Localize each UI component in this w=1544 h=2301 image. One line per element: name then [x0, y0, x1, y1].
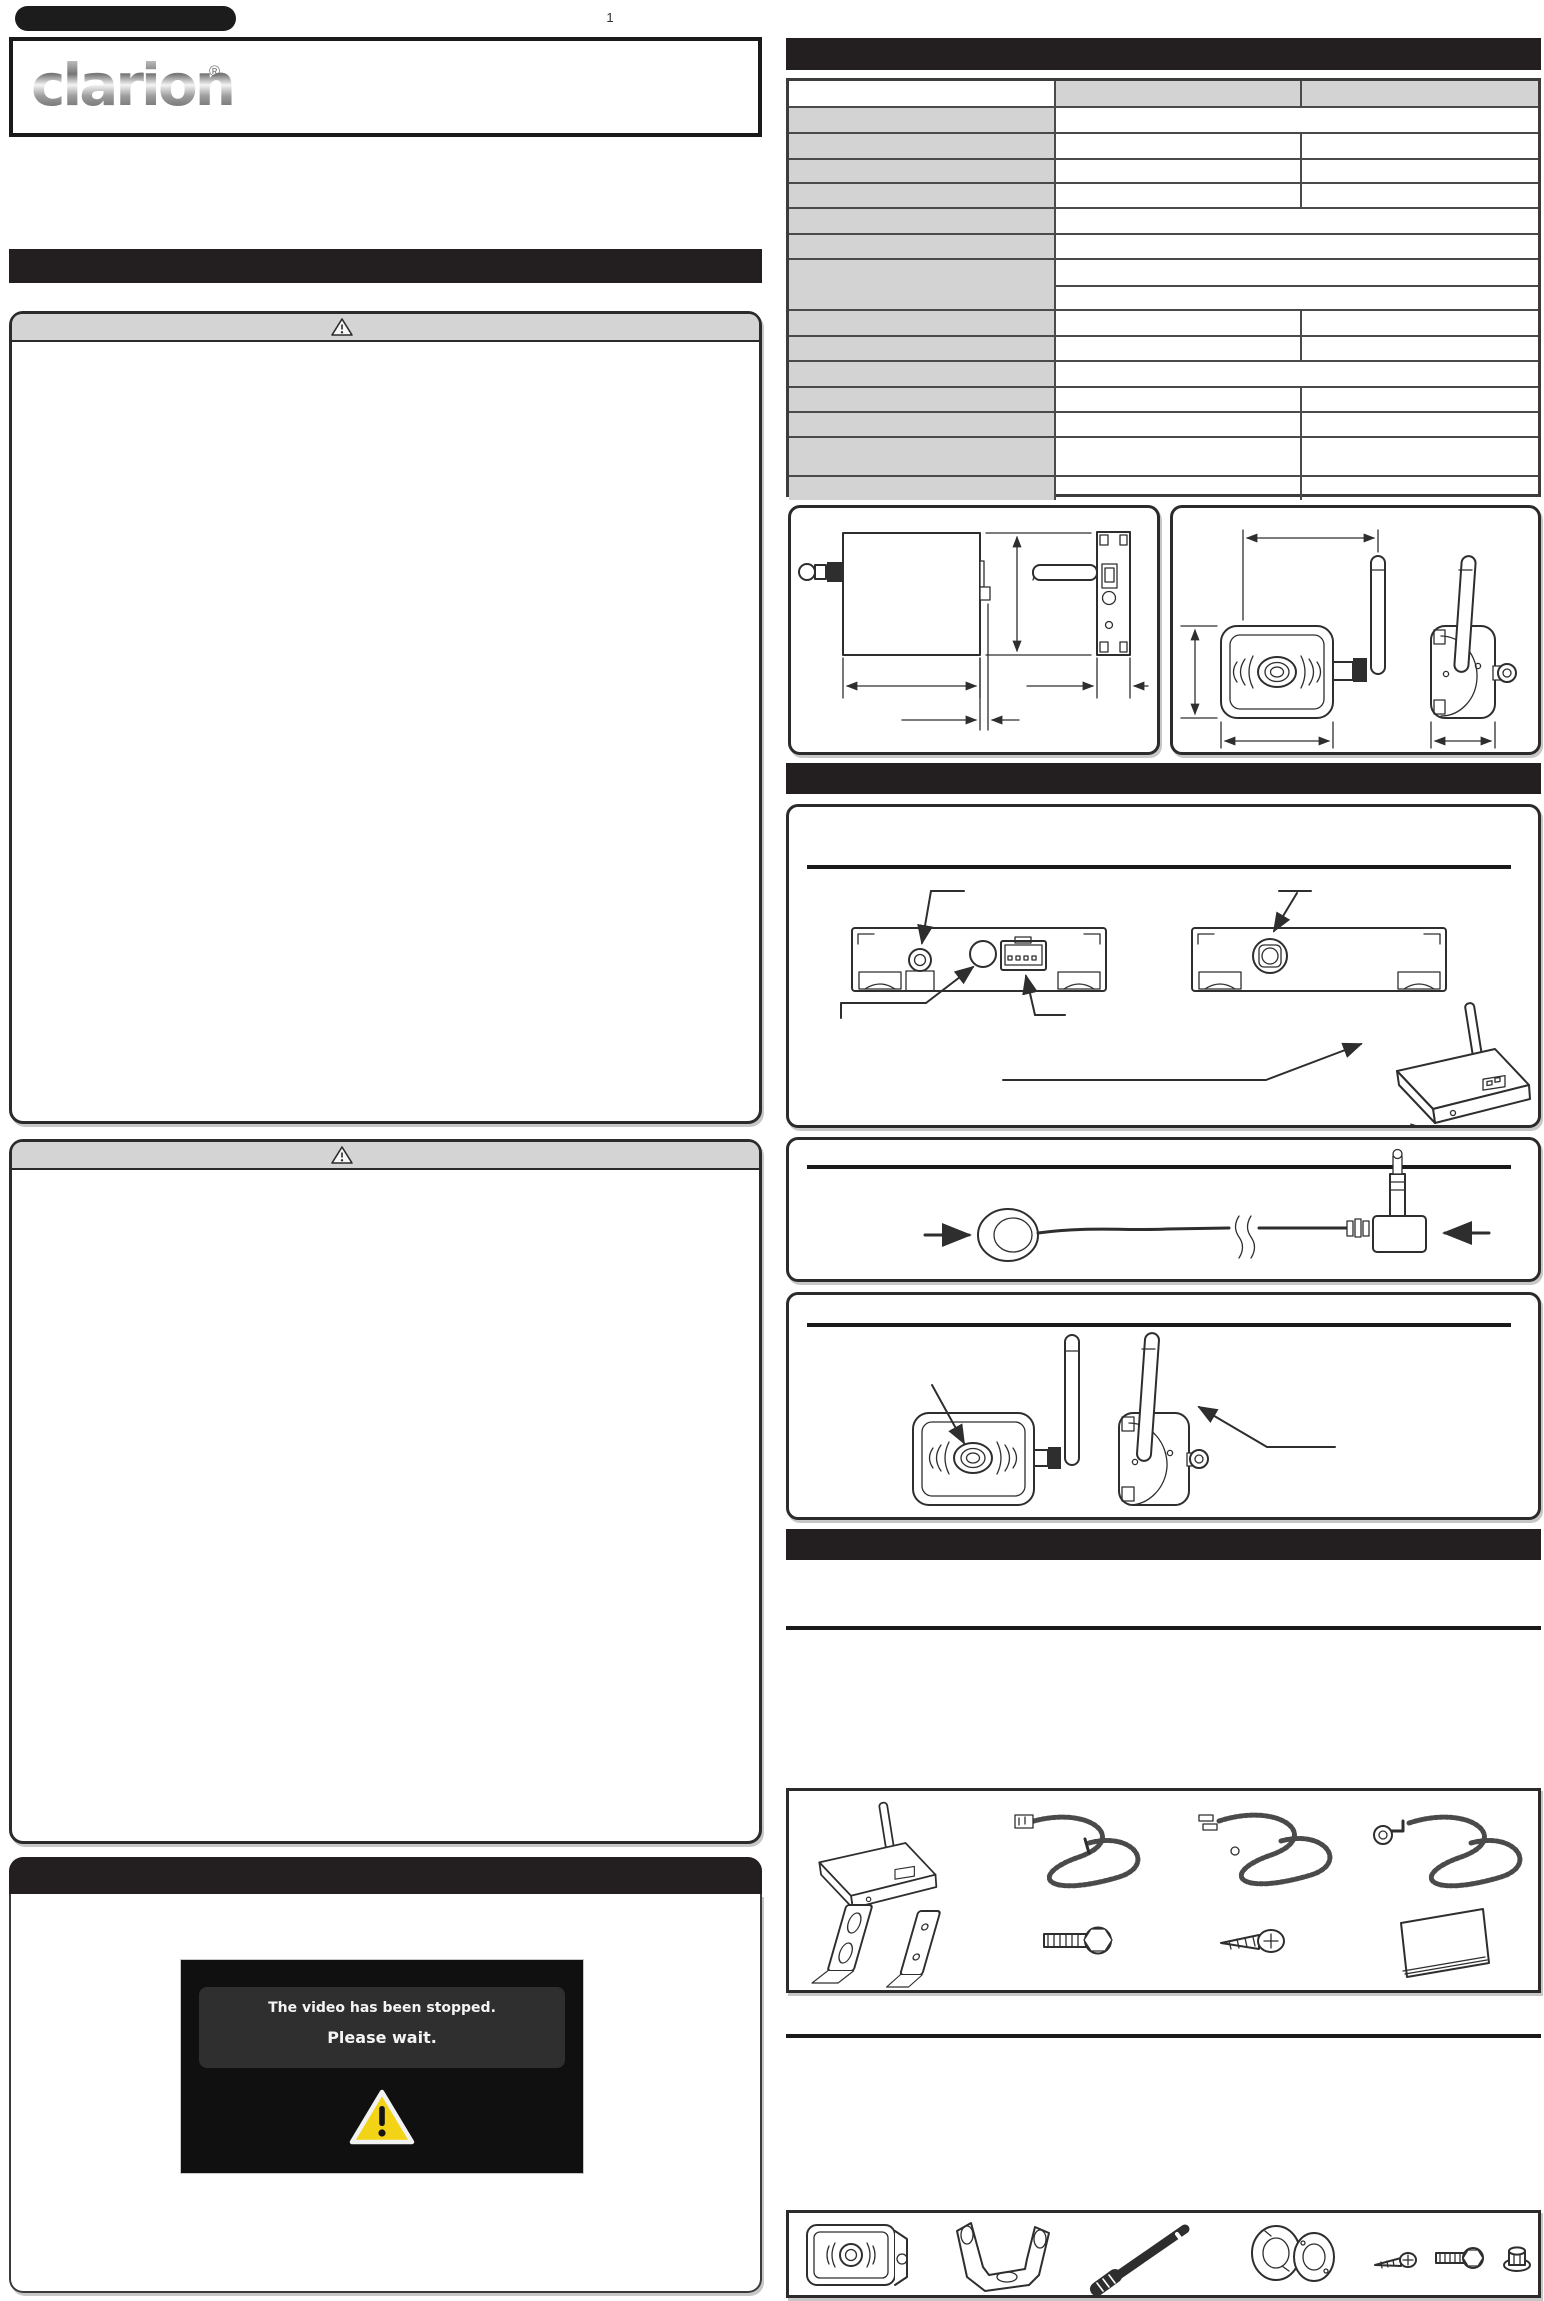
power-cable-icon [1015, 1815, 1138, 1886]
antenna-cable-icon [1374, 1817, 1520, 1886]
av-cable-icon [1199, 1815, 1330, 1884]
model-badge [15, 6, 236, 31]
brand-box: clarion ® [9, 37, 762, 137]
accessory-set-drawing [789, 1791, 1538, 1990]
camera-3d-icon [807, 2225, 907, 2285]
warning-box-2-header [12, 1142, 759, 1170]
yellow-warning-triangle-icon [348, 2088, 416, 2146]
spec-table-row [789, 207, 1538, 233]
figure-title-underline [807, 1165, 1511, 1169]
spec-table-row [789, 475, 1538, 500]
warning-box-1-header [12, 314, 759, 342]
screen-message-line1: The video has been stopped. [199, 2000, 565, 2016]
video-stopped-screen: The video has been stopped. Please wait. [180, 1959, 584, 2174]
small-screw-icon [1375, 2253, 1416, 2268]
round-antenna-pad [978, 1209, 1038, 1261]
spec-table-row [789, 335, 1538, 360]
manual-booklet-icon [1401, 1909, 1489, 1977]
transmitter-dimension-drawing [791, 508, 1157, 752]
camera-accessory-drawing [789, 2213, 1538, 2295]
camera-side-drawing [1119, 1333, 1208, 1505]
spec-table-row [789, 132, 1538, 158]
warning-box-1 [9, 311, 762, 1124]
section-bar-accessories [786, 1529, 1541, 1560]
transmitter-dimension-figure [788, 505, 1160, 755]
subsection-rule-2 [786, 2034, 1541, 2038]
spec-table-row [789, 106, 1538, 132]
extension-cable-drawing [789, 1140, 1538, 1279]
manual-page: 1 clarion ® The video has been stopped. [0, 0, 1544, 2301]
warning-box-2 [9, 1139, 762, 1844]
camera-dimension-drawing [1173, 508, 1538, 752]
antenna-icon [1097, 2229, 1185, 2291]
wireless-transmitter-icon [819, 1802, 936, 1908]
right-angle-plug [1373, 1150, 1426, 1253]
spec-table [786, 78, 1541, 497]
spec-table-row [789, 386, 1538, 411]
u-bracket-icon [957, 2223, 1049, 2291]
screen-message-box: The video has been stopped. Please wait. [199, 1987, 565, 2068]
section-bar-caution-display [9, 1857, 762, 1894]
spec-table-row [789, 258, 1538, 309]
head-unit-b [1192, 928, 1446, 991]
camera-figure [786, 1292, 1541, 1520]
accessory-box-1 [786, 1788, 1541, 1993]
subsection-rule-1 [786, 1626, 1541, 1630]
extension-cable-figure [786, 1137, 1541, 1282]
spec-table-row [789, 411, 1538, 436]
spec-table-row [789, 436, 1538, 475]
figure-title-underline [807, 865, 1511, 869]
washer-icon [1252, 2226, 1334, 2281]
cable-break-marks [1236, 1216, 1255, 1258]
spec-table-row [789, 182, 1538, 207]
antenna-callout-arrow [1199, 1407, 1335, 1447]
wireless-transmitter-icon [1397, 1003, 1530, 1125]
bolt-icon [1436, 2248, 1483, 2268]
spec-table-row [789, 233, 1538, 258]
clarion-logo: clarion [31, 51, 233, 119]
camera-front-drawing [913, 1335, 1079, 1505]
warning-triangle-icon [330, 317, 354, 337]
spec-table-row [789, 158, 1538, 182]
head-unit-rear-diagram [789, 807, 1538, 1125]
tapping-screw-icon [1221, 1930, 1284, 1952]
registered-mark: ® [209, 63, 220, 80]
screen-message-line2: Please wait. [199, 2028, 565, 2047]
section-bar-installation [786, 763, 1541, 794]
figure-title-underline [807, 1323, 1511, 1327]
nut-icon [1504, 2247, 1530, 2271]
camera-dimension-figure [1170, 505, 1541, 755]
camera-drawings [789, 1295, 1538, 1517]
head-unit-a [852, 928, 1106, 991]
spec-table-row [789, 360, 1538, 386]
spec-table-row [789, 81, 1538, 106]
warning-triangle-icon [330, 1145, 354, 1165]
accessory-box-2 [786, 2210, 1541, 2298]
section-bar-precautions [9, 249, 762, 283]
mounting-bracket-icon [812, 1905, 940, 1987]
installation-figure [786, 804, 1541, 1128]
section-bar-specifications [786, 38, 1541, 70]
spec-table-row [789, 309, 1538, 335]
page-number: 1 [598, 10, 622, 25]
hex-bolt-icon [1044, 1928, 1112, 1954]
